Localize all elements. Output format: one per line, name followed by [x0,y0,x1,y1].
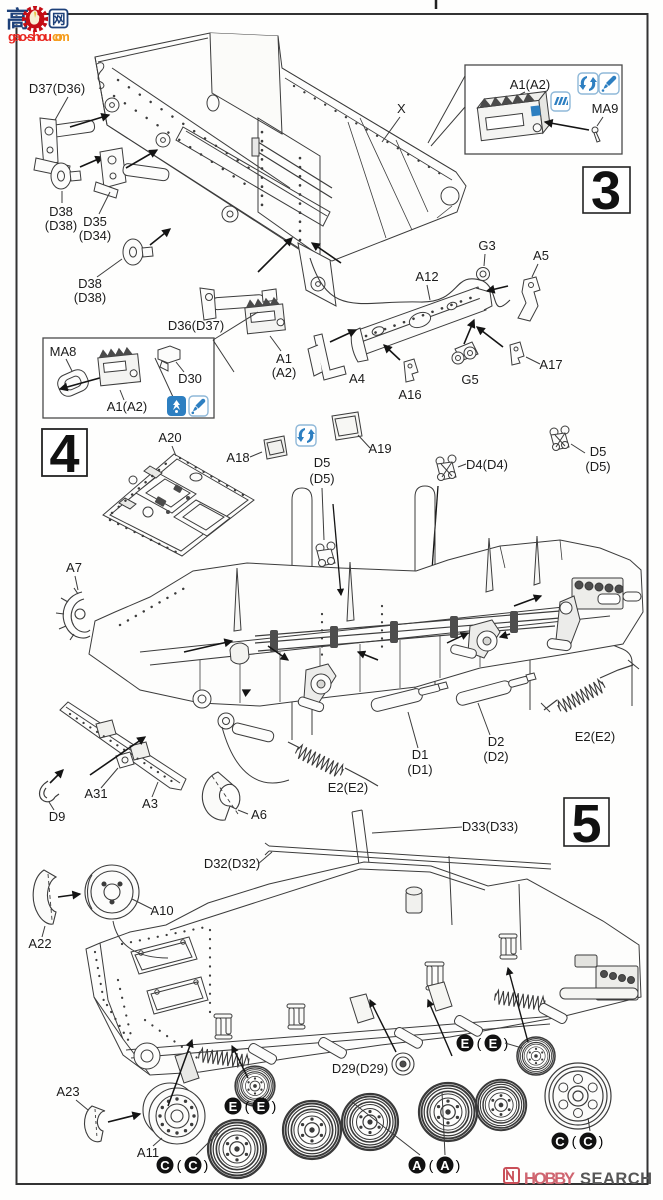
svg-text:C: C [555,1134,565,1149]
svg-text:(: ( [245,1098,250,1114]
svg-text:A1(A2): A1(A2) [510,77,550,92]
svg-text:A5: A5 [533,248,549,263]
svg-text:A31: A31 [84,786,107,801]
svg-text:E2(E2): E2(E2) [328,780,368,795]
svg-text:C: C [583,1134,593,1149]
svg-text:A: A [412,1158,422,1173]
svg-text:A3: A3 [142,796,158,811]
svg-text:A12: A12 [415,269,438,284]
svg-text:网: 网 [52,12,66,27]
svg-text:(: ( [429,1157,434,1173]
svg-text:D5: D5 [314,455,331,470]
svg-text:D32(D32): D32(D32) [204,856,260,871]
svg-text:(D2): (D2) [483,749,508,764]
svg-text:gao-shou: gao-shou [8,29,52,44]
svg-text:G3: G3 [478,238,495,253]
svg-text:(: ( [572,1133,577,1149]
svg-text:): ) [204,1157,209,1173]
svg-text:C: C [188,1158,198,1173]
svg-text:A10: A10 [150,903,173,918]
svg-text:A17: A17 [539,357,562,372]
svg-text:(: ( [177,1157,182,1173]
svg-text:.com: .com [52,29,70,44]
svg-text:(: ( [477,1035,482,1051]
svg-text:A7: A7 [66,560,82,575]
svg-text:): ) [599,1133,604,1149]
svg-text:): ) [456,1157,461,1173]
svg-text:C: C [160,1158,170,1173]
svg-text:4: 4 [49,424,79,484]
svg-text:G5: G5 [461,372,478,387]
svg-text:A4: A4 [349,371,365,386]
svg-text:(D38): (D38) [74,290,107,305]
svg-text:D29(D29): D29(D29) [332,1061,388,1076]
svg-text:D5: D5 [590,444,607,459]
svg-text:D2: D2 [488,734,505,749]
svg-text:(D38): (D38) [45,218,78,233]
svg-text:D38: D38 [78,276,102,291]
svg-text:A1: A1 [276,351,292,366]
svg-text:D38: D38 [49,204,73,219]
svg-text:D4(D4): D4(D4) [466,457,508,472]
svg-text:A19: A19 [368,441,391,456]
svg-text:A: A [440,1158,450,1173]
svg-text:): ) [272,1098,277,1114]
svg-text:E: E [229,1099,238,1114]
svg-text:SEARCH: SEARCH [580,1170,652,1188]
svg-text:A11: A11 [137,1145,159,1160]
svg-text:A22: A22 [28,936,51,951]
svg-text:E2(E2): E2(E2) [575,729,615,744]
svg-text:(A2): (A2) [272,365,297,380]
svg-text:D35: D35 [83,214,107,229]
svg-text:D30: D30 [178,371,202,386]
svg-text:5: 5 [571,794,601,854]
svg-text:A6: A6 [251,807,267,822]
svg-text:E: E [257,1099,266,1114]
svg-text:MA9: MA9 [592,101,619,116]
svg-text:3: 3 [591,161,621,221]
svg-text:A18: A18 [226,450,249,465]
svg-text:MA8: MA8 [50,344,77,359]
svg-text:D37(D36): D37(D36) [29,81,85,96]
svg-text:(D5): (D5) [585,459,610,474]
svg-text:D9: D9 [49,809,66,824]
svg-text:HOBBY: HOBBY [524,1170,575,1188]
svg-text:D33(D33): D33(D33) [462,819,518,834]
svg-text:X: X [397,101,406,116]
svg-text:D1: D1 [412,747,429,762]
svg-text:A16: A16 [398,387,421,402]
svg-text:E: E [461,1036,470,1051]
svg-text:A20: A20 [158,430,181,445]
svg-text:(D5): (D5) [309,471,334,486]
svg-text:A1(A2): A1(A2) [107,399,147,414]
svg-text:E: E [489,1036,498,1051]
svg-text:(D34): (D34) [79,228,112,243]
svg-text:D36(D37): D36(D37) [168,318,224,333]
svg-text:(D1): (D1) [407,762,432,777]
svg-text:A23: A23 [56,1084,79,1099]
